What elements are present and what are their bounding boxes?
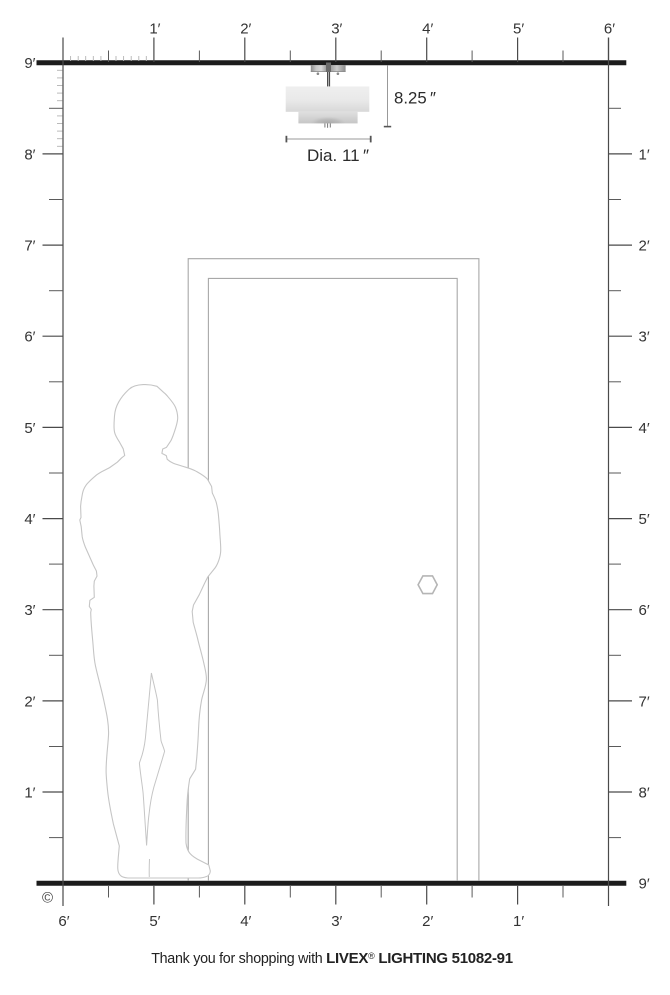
svg-text:Dia. 11 ″: Dia. 11 ″ bbox=[307, 146, 369, 165]
svg-text:©: © bbox=[42, 890, 53, 907]
svg-text:7′: 7′ bbox=[24, 238, 35, 255]
svg-text:3′: 3′ bbox=[331, 913, 342, 930]
svg-text:5′: 5′ bbox=[24, 420, 35, 437]
svg-text:1′: 1′ bbox=[639, 146, 650, 163]
svg-text:1′: 1′ bbox=[513, 913, 524, 930]
svg-text:4′: 4′ bbox=[639, 420, 650, 437]
svg-text:8′: 8′ bbox=[24, 146, 35, 163]
svg-text:7′: 7′ bbox=[639, 693, 650, 710]
svg-text:5′: 5′ bbox=[513, 21, 524, 38]
svg-text:1′: 1′ bbox=[149, 21, 160, 38]
svg-text:5′: 5′ bbox=[149, 913, 160, 930]
svg-text:2′: 2′ bbox=[639, 238, 650, 255]
svg-text:9′: 9′ bbox=[24, 55, 35, 72]
svg-text:6′: 6′ bbox=[58, 913, 69, 930]
svg-text:2′: 2′ bbox=[24, 693, 35, 710]
svg-text:5′: 5′ bbox=[639, 511, 650, 528]
svg-text:4′: 4′ bbox=[240, 913, 251, 930]
svg-text:3′: 3′ bbox=[639, 329, 650, 346]
svg-text:4′: 4′ bbox=[24, 511, 35, 528]
svg-text:8.25 ″: 8.25 ″ bbox=[394, 88, 436, 107]
svg-text:9′: 9′ bbox=[639, 876, 650, 893]
svg-text:6′: 6′ bbox=[24, 329, 35, 346]
svg-text:8′: 8′ bbox=[639, 785, 650, 802]
svg-text:2′: 2′ bbox=[422, 913, 433, 930]
svg-text:1′: 1′ bbox=[24, 785, 35, 802]
svg-text:2′: 2′ bbox=[240, 21, 251, 38]
svg-text:4′: 4′ bbox=[422, 21, 433, 38]
svg-text:6′: 6′ bbox=[604, 21, 615, 38]
svg-text:6′: 6′ bbox=[639, 602, 650, 619]
svg-text:3′: 3′ bbox=[331, 21, 342, 38]
svg-text:3′: 3′ bbox=[24, 602, 35, 619]
